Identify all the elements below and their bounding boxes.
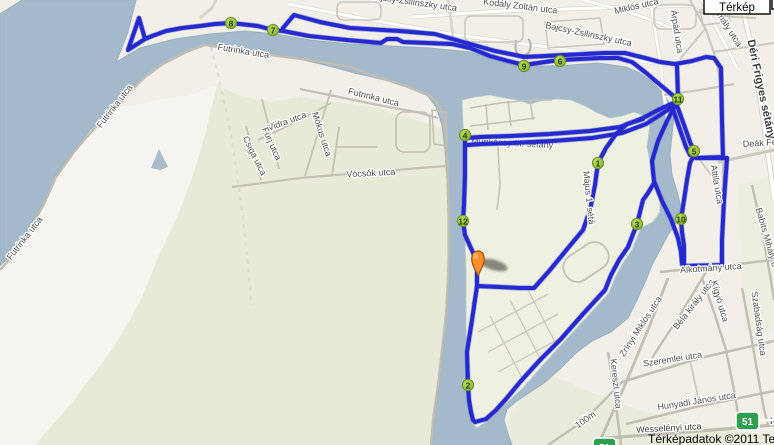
svg-text:9: 9 — [522, 61, 527, 71]
svg-text:Térkép: Térkép — [719, 2, 755, 14]
svg-text:2: 2 — [466, 380, 471, 390]
svg-text:4: 4 — [463, 130, 468, 140]
svg-text:6: 6 — [558, 56, 563, 66]
svg-text:12: 12 — [458, 216, 468, 226]
svg-text:8: 8 — [229, 18, 234, 28]
svg-text:11: 11 — [674, 94, 683, 104]
svg-text:Térképadatok ©2011 Tele: Térképadatok ©2011 Tele — [648, 432, 774, 445]
svg-text:Deák Fe: Deák Fe — [742, 137, 774, 149]
svg-text:7: 7 — [271, 25, 276, 35]
svg-text:3: 3 — [635, 219, 640, 229]
svg-text:1: 1 — [596, 158, 601, 168]
svg-text:10: 10 — [676, 214, 686, 224]
svg-text:51: 51 — [742, 417, 754, 428]
svg-text:5: 5 — [692, 146, 697, 156]
